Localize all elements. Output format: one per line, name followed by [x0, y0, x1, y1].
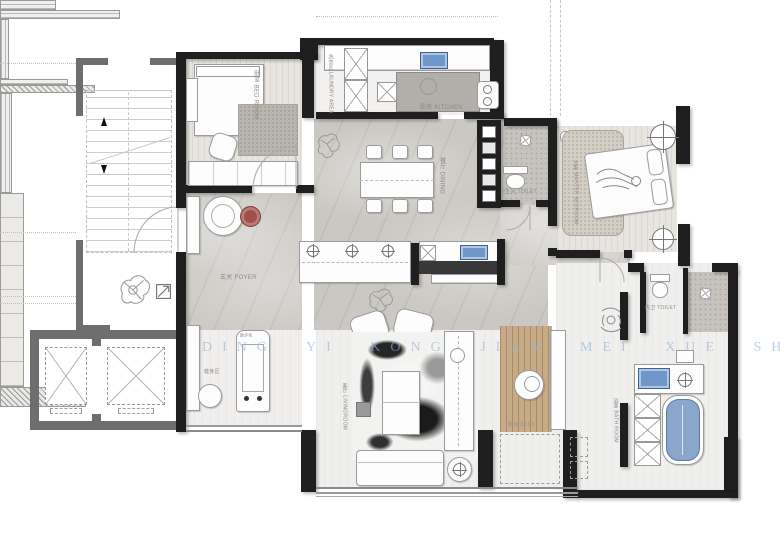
treadmill-wheel	[257, 396, 262, 401]
appliance-cell	[482, 174, 496, 186]
downlight-icon	[307, 245, 319, 257]
decor	[157, 285, 171, 299]
downlight-icon	[382, 245, 394, 257]
wall-column	[497, 239, 505, 285]
planter-outline	[500, 434, 560, 484]
decor	[596, 166, 634, 185]
bath-cabinet-cell	[634, 418, 661, 442]
window-master	[0, 10, 120, 19]
bedroom2-door-arc	[253, 146, 296, 189]
treadmill-wheel	[244, 396, 249, 401]
guide-line	[316, 16, 498, 17]
burner	[483, 97, 492, 106]
label-foyer: 玄关 FOYER	[220, 275, 257, 282]
elevator-shaft	[107, 347, 165, 405]
lounge-chair-seat	[211, 204, 235, 228]
decor	[318, 134, 339, 158]
bathtub-line	[682, 405, 683, 455]
ceiling-light-icon	[650, 124, 676, 150]
washer	[344, 48, 368, 80]
label-fitness: 健身区	[204, 370, 220, 376]
wall	[176, 252, 186, 432]
guide-line	[0, 232, 76, 233]
guide-line	[0, 63, 76, 64]
decor	[121, 276, 150, 304]
sofa-cushion-line	[358, 462, 442, 463]
toilet-bowl	[506, 174, 525, 189]
glass-wall-column	[0, 193, 24, 387]
wall	[624, 250, 632, 258]
foyer-cabinet	[186, 196, 200, 254]
floor-plan: 卧室 BED ROOM 洗衣区 LAUNDRY AREA 厨房 KITCHEN …	[0, 0, 780, 537]
bar-island-line	[302, 262, 408, 263]
floor-drain-icon	[519, 134, 531, 146]
coffee-table	[382, 371, 420, 435]
toilet-bowl	[652, 282, 668, 298]
wall	[620, 403, 628, 467]
label-treadmill: 跑步机	[240, 334, 253, 338]
side-table-red	[240, 206, 261, 227]
downlight-icon	[346, 245, 358, 257]
bench-box	[570, 437, 588, 457]
decor	[158, 286, 168, 296]
toilet-tank	[503, 166, 528, 174]
window-master-side	[0, 19, 9, 79]
dining-chair	[417, 145, 433, 159]
stair-divider	[128, 92, 129, 251]
ceiling-light-icon	[652, 228, 674, 250]
toilet-tank	[650, 274, 670, 282]
decor	[121, 276, 150, 304]
wall	[576, 490, 738, 498]
wall	[678, 224, 690, 266]
entry-door-arc	[134, 207, 178, 253]
label-dining: 餐厅 DINING	[438, 157, 445, 194]
label-laundry: 洗衣区 LAUNDRY AREA	[327, 54, 333, 114]
wall-elevator	[30, 330, 178, 339]
balcony-window	[316, 487, 578, 489]
west-kitchen-cabinets	[431, 274, 503, 284]
stool	[198, 384, 222, 408]
decor	[607, 316, 615, 324]
west-kitchen-base	[419, 261, 503, 274]
decor	[506, 206, 530, 230]
wall-pier	[478, 430, 493, 488]
wok-circle	[420, 78, 437, 95]
dryer	[344, 80, 368, 112]
plant-sketch	[116, 272, 152, 308]
plant-sketch	[366, 286, 396, 316]
decor	[134, 207, 178, 253]
rug-cushion	[356, 402, 371, 417]
label-deck: 阳台 23.03	[508, 423, 534, 429]
wall-stair	[76, 240, 83, 332]
label-master: 主卧 MASTER BEDROOM	[572, 160, 578, 225]
window-living-left	[0, 93, 12, 193]
label-guest-toilet: 卫生间 TOILET	[500, 190, 537, 196]
wall	[316, 38, 494, 45]
wall	[536, 200, 548, 207]
wall	[640, 272, 646, 333]
wall-elevator	[30, 421, 178, 430]
person-sketch	[589, 153, 653, 207]
bath-cabinet-cell	[634, 442, 661, 466]
wall-elevator	[30, 330, 39, 430]
watermark-text: DING YI KONG JIAN MEI XUE SHE JI	[202, 340, 780, 356]
sofa	[356, 450, 444, 486]
downlight-icon	[678, 373, 692, 387]
window-bedroom2	[0, 0, 56, 10]
appliance	[377, 82, 397, 102]
fitness-window	[186, 430, 302, 432]
west-kitchen-sink	[460, 245, 488, 260]
wall	[628, 263, 644, 272]
decor	[601, 308, 621, 332]
label-bedroom2: 卧室 BED ROOM	[252, 70, 259, 120]
wall-elevator	[92, 414, 101, 430]
master-door-arc	[600, 258, 624, 282]
guide-line	[0, 296, 76, 297]
person-sketch	[598, 303, 624, 337]
guest-bath-door-arc	[506, 206, 530, 230]
nightstand	[186, 78, 198, 122]
bed-pillows	[196, 66, 260, 77]
wall-corner	[724, 437, 738, 490]
floor-shower	[688, 272, 728, 332]
balcony-window	[316, 492, 578, 494]
wall	[556, 250, 600, 258]
wall-divider	[411, 243, 419, 285]
decor	[321, 138, 334, 152]
decor	[601, 308, 621, 332]
wall	[683, 268, 688, 334]
dining-chair	[392, 199, 408, 213]
wall	[316, 112, 438, 119]
dining-table-line	[360, 180, 434, 181]
floor-drain-icon	[699, 287, 711, 299]
wall	[548, 118, 557, 226]
master-bed-group	[584, 143, 674, 220]
decor	[600, 258, 624, 282]
vanity-sink	[638, 368, 670, 389]
decor	[124, 280, 143, 299]
bench-box	[570, 461, 588, 479]
decor	[594, 165, 641, 194]
coffee-table-line	[382, 402, 420, 403]
elevator-door	[50, 408, 82, 414]
wall	[464, 112, 504, 119]
fitness-window	[186, 425, 302, 427]
dining-chair	[366, 145, 382, 159]
appliance-cell	[482, 190, 496, 202]
burner	[483, 85, 492, 94]
wall	[186, 185, 252, 193]
bath-cabinet-cell	[634, 394, 661, 418]
kitchen-sink	[420, 52, 448, 69]
appliance-cell	[482, 142, 496, 154]
wall-elevator	[92, 330, 101, 346]
decor	[370, 289, 393, 311]
decor	[596, 174, 637, 192]
dining-chair	[392, 145, 408, 159]
dining-chair	[366, 199, 382, 213]
elevator-shaft	[45, 347, 87, 405]
guide-line	[560, 0, 561, 116]
label-living: 客厅 LIVINGROOM	[341, 383, 347, 430]
stair-arrow-down-icon	[101, 165, 107, 174]
guide-line	[550, 0, 551, 116]
wall	[176, 52, 186, 208]
guide-line	[0, 303, 76, 304]
plant-sketch	[316, 132, 340, 164]
appliance-cell	[482, 158, 496, 170]
decor	[253, 146, 296, 189]
appliance	[420, 245, 436, 261]
wall	[302, 52, 314, 118]
label-inner-toilet: 内卫 TOILET	[645, 306, 677, 312]
wall-column	[676, 106, 690, 164]
wall-stair	[150, 58, 178, 65]
elevator-door	[118, 408, 154, 414]
decor	[318, 134, 339, 158]
balcony-window	[316, 496, 578, 497]
label-kitchen: 厨房 KITCHEN	[420, 105, 463, 112]
label-bathroom: 浴室 BATH ROOM	[612, 398, 618, 443]
entry-marker-icon	[156, 284, 171, 299]
wall	[296, 185, 314, 193]
stair-arrow-up-icon	[101, 117, 107, 126]
decor	[603, 183, 630, 192]
deck-cup	[524, 376, 540, 392]
dining-chair	[417, 199, 433, 213]
wall-pier	[301, 430, 316, 492]
bathtub-basin	[666, 399, 700, 461]
wall	[186, 52, 316, 59]
appliance-cell	[482, 126, 496, 138]
side-table-decor	[453, 463, 466, 476]
wall-stair	[76, 58, 83, 116]
